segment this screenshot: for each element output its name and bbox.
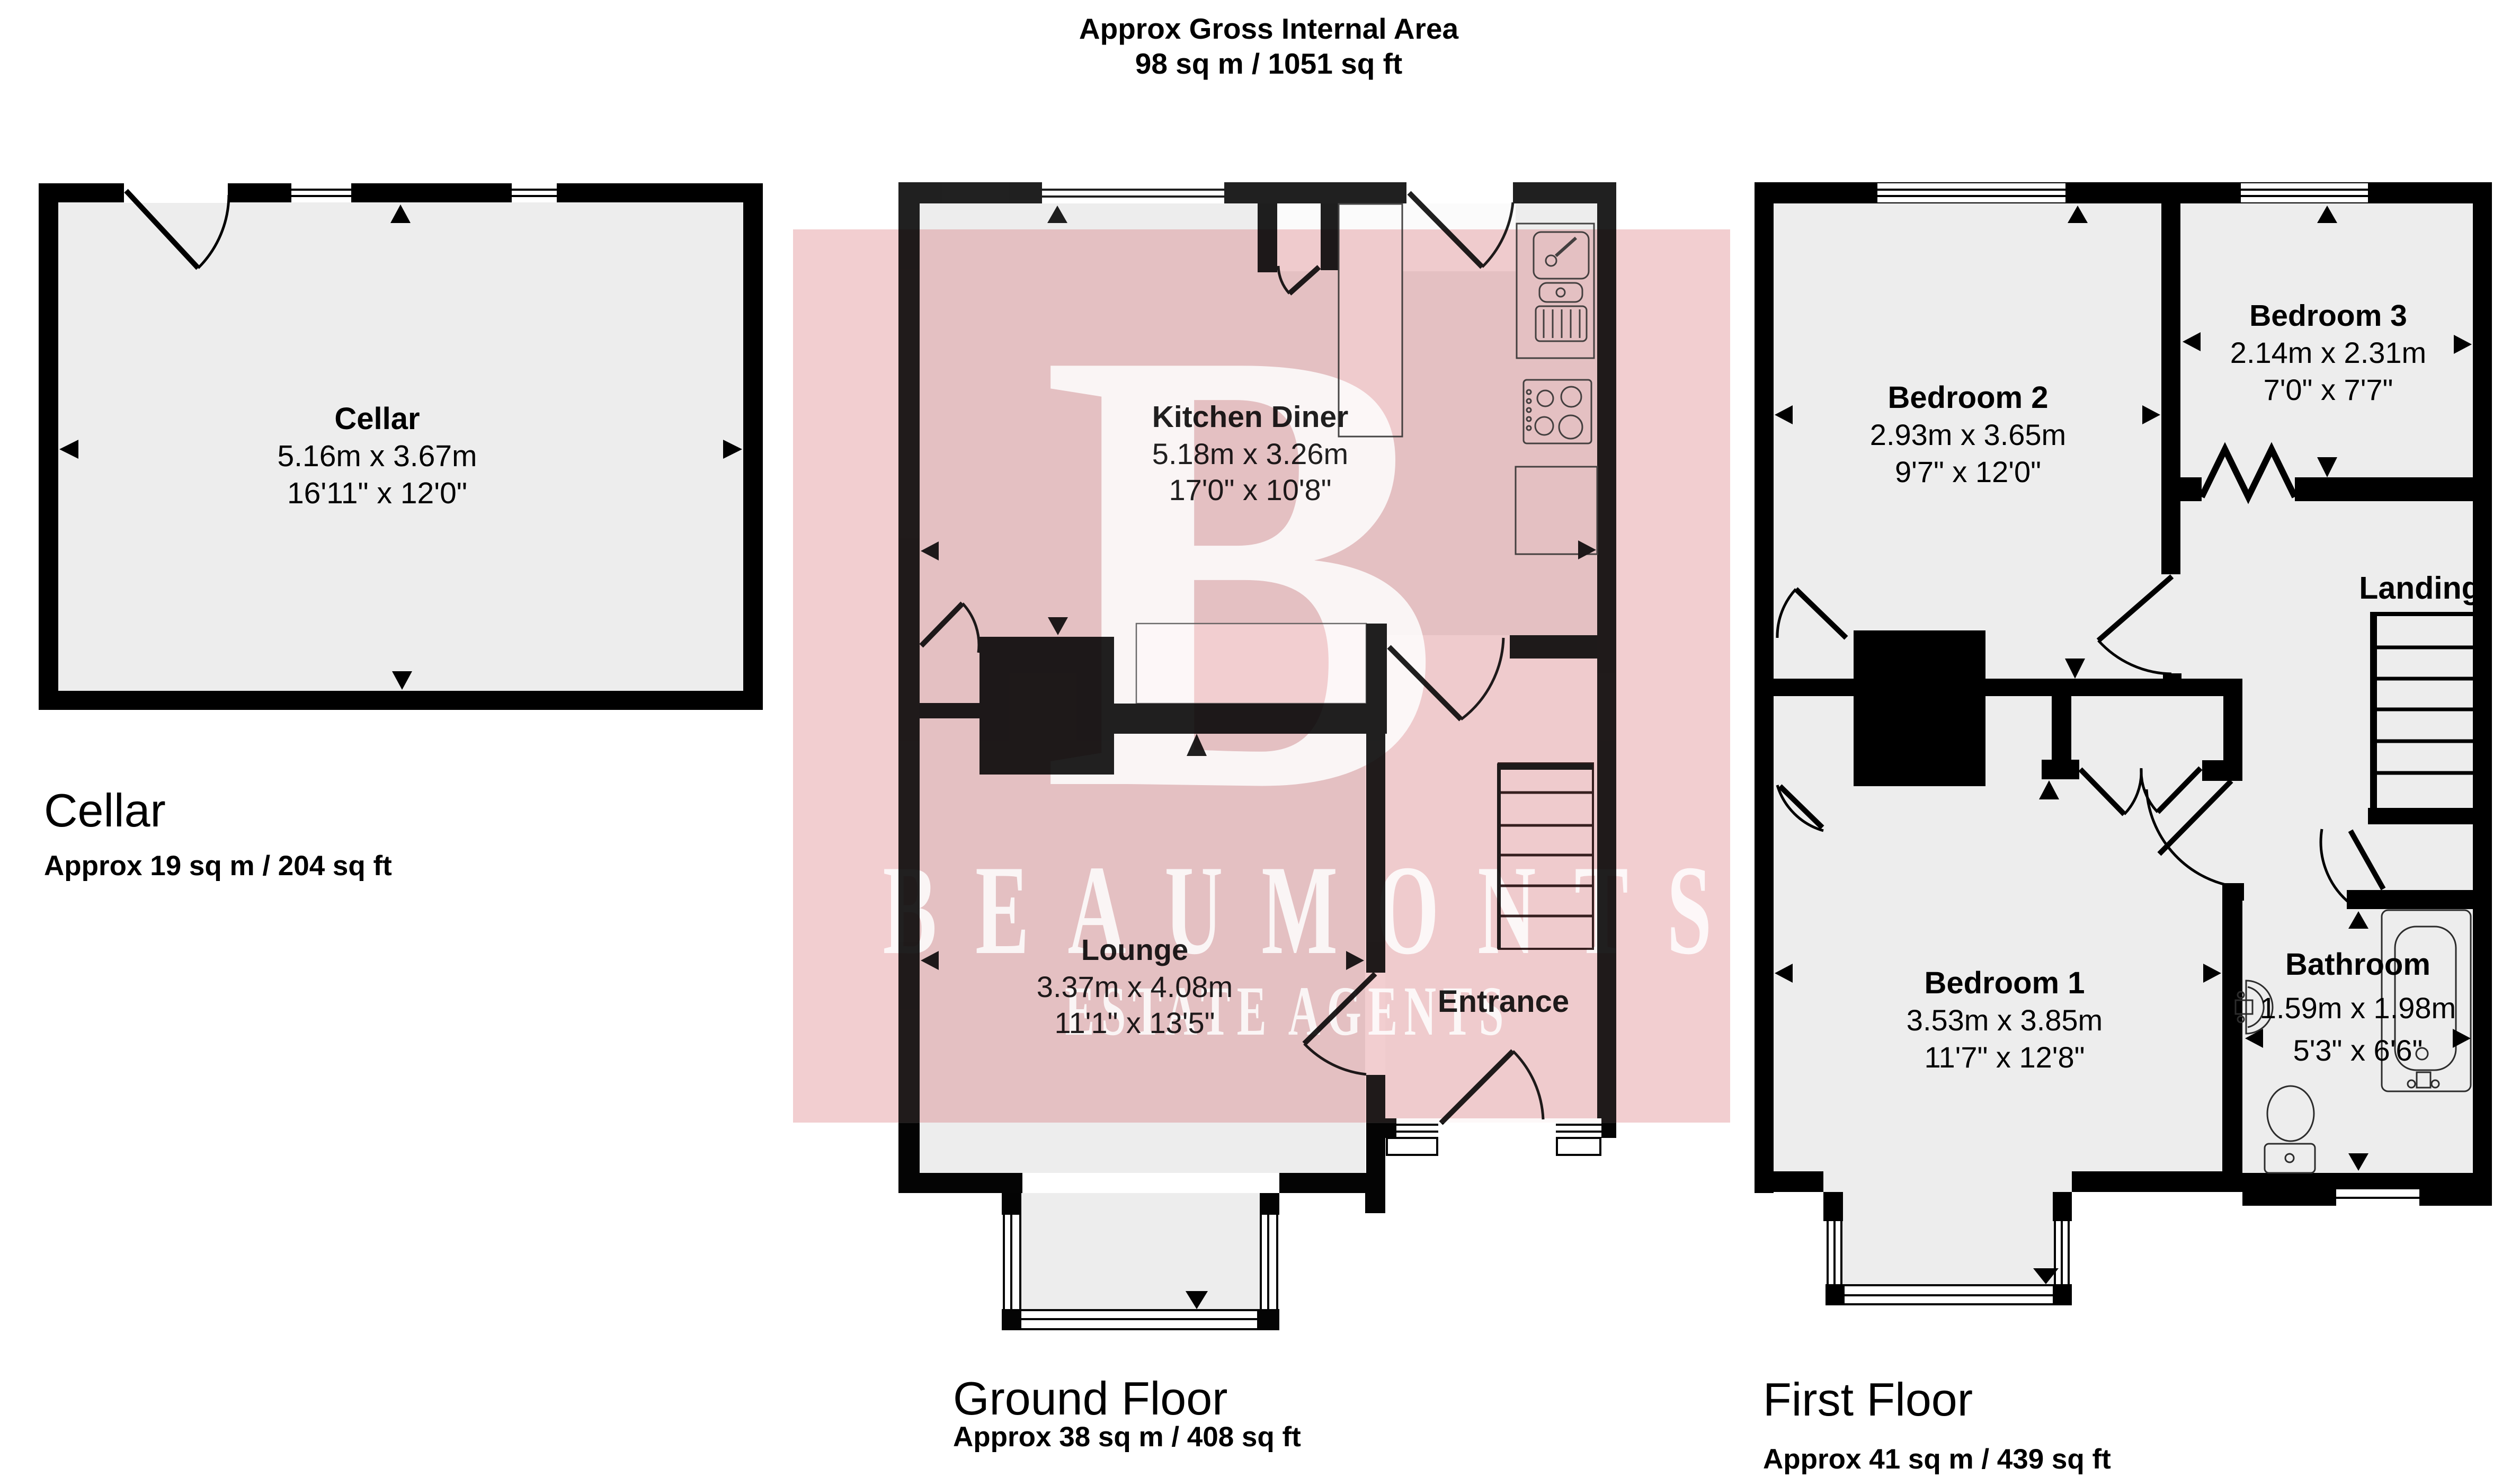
svg-text:2.14m x 2.31m: 2.14m x 2.31m [2230,336,2426,369]
svg-text:1.59m x 1.98m: 1.59m x 1.98m [2260,991,2456,1025]
svg-text:2.93m x 3.65m: 2.93m x 3.65m [1870,418,2066,451]
svg-text:3.53m x 3.85m: 3.53m x 3.85m [1907,1003,2103,1037]
svg-text:Bedroom 3: Bedroom 3 [2249,299,2407,333]
svg-text:5'3" x 6'6": 5'3" x 6'6" [2293,1034,2423,1067]
svg-text:17'0" x 10'8": 17'0" x 10'8" [1169,473,1331,506]
svg-text:9'7" x 12'0": 9'7" x 12'0" [1895,455,2041,488]
svg-text:5.16m x 3.67m: 5.16m x 3.67m [277,439,477,473]
svg-text:5.18m x 3.26m: 5.18m x 3.26m [1152,437,1348,470]
svg-text:Cellar: Cellar [44,784,166,837]
svg-text:Approx Gross Internal Area: Approx Gross Internal Area [1079,12,1459,45]
svg-text:Bedroom 2: Bedroom 2 [1888,380,2049,415]
svg-text:Cellar: Cellar [334,402,420,436]
svg-text:Approx 41 sq m / 439 sq ft: Approx 41 sq m / 439 sq ft [1763,1444,2111,1475]
svg-text:Bedroom 1: Bedroom 1 [1925,966,2085,1000]
svg-text:3.37m x 4.08m: 3.37m x 4.08m [1037,970,1233,1003]
svg-text:Bathroom: Bathroom [2285,947,2430,982]
svg-text:Lounge: Lounge [1081,933,1188,966]
svg-text:11'7" x 12'8": 11'7" x 12'8" [1925,1040,2085,1074]
svg-text:Approx 38 sq m / 408 sq ft: Approx 38 sq m / 408 sq ft [953,1421,1301,1453]
svg-text:BEAUMONTS: BEAUMONTS [883,839,1750,981]
svg-text:98 sq m / 1051 sq ft: 98 sq m / 1051 sq ft [1135,47,1402,80]
svg-text:Ground Floor: Ground Floor [953,1372,1227,1425]
svg-text:First Floor: First Floor [1763,1373,1973,1426]
svg-text:Entrance: Entrance [1438,984,1569,1019]
svg-text:Approx 19 sq m / 204 sq ft: Approx 19 sq m / 204 sq ft [44,850,392,882]
svg-text:16'11" x 12'0": 16'11" x 12'0" [287,476,467,510]
svg-text:7'0" x 7'7": 7'0" x 7'7" [2264,373,2393,406]
svg-text:11'1" x 13'5": 11'1" x 13'5" [1055,1006,1215,1039]
svg-text:Landing: Landing [2359,571,2480,606]
svg-text:Kitchen Diner: Kitchen Diner [1152,400,1349,434]
